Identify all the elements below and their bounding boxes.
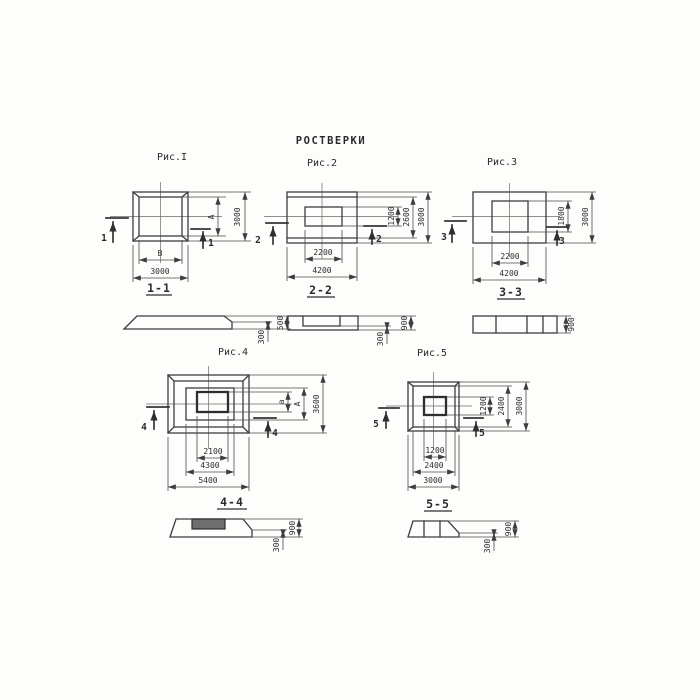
fig1-dim-right-inner: А: [207, 214, 216, 219]
fig3-dim-bottom-outer: 4200: [499, 269, 518, 278]
fig1-cut-digit-left: 1: [101, 233, 107, 244]
fig4: Рис.4 2100 4300 5400 а: [141, 347, 327, 509]
fig4-dim-bottom-outer: 5400: [198, 476, 217, 485]
fig3-section-view: 900: [473, 316, 576, 333]
section5-shape: [408, 521, 459, 537]
section5-dim-total: 900: [504, 522, 513, 537]
fig5-dim-lines: [408, 382, 530, 491]
fig5-dim-bottom-outer: 3000: [423, 476, 442, 485]
scanned-drawing-page: РОСТВЕРКИ Рис.I В 3000 А 3000: [0, 0, 700, 700]
section3-dim-total: 900: [567, 317, 576, 332]
fig4-dim-bottom-mid: 4300: [200, 461, 219, 470]
fig2: Рис.2 2200 4200 1200 2600 3000: [255, 158, 432, 297]
fig2-caption: Рис.2: [307, 158, 337, 169]
fig3: Рис.3 2200 4200 1800 3000 3 3 3-3: [441, 157, 596, 299]
fig2-section-title: 2-2: [309, 283, 333, 297]
section1-dim-total: 500: [276, 316, 285, 331]
fig4-cut-digit-left: 4: [141, 422, 147, 433]
fig3-cut-digit-right: 3: [559, 236, 565, 247]
fig3-caption: Рис.3: [487, 157, 517, 168]
fig4-dim-bottom-inner: 2100: [203, 447, 222, 456]
fig5-dim-bottom-mid: 2400: [424, 461, 443, 470]
section2-dim-total: 900: [400, 316, 409, 331]
fig5-dim-right-inner: 1200: [479, 396, 488, 415]
fig5-section-view: 900 300: [408, 521, 519, 553]
fig1-cut-digit-right: 1: [208, 238, 214, 249]
section4-notch: [192, 519, 225, 529]
fig4-dim-right-mid: А: [293, 401, 302, 406]
fig4-section-title: 4-4: [220, 495, 244, 509]
section2-dim-lower: 300: [376, 332, 385, 347]
technical-drawing: РОСТВЕРКИ Рис.I В 3000 А 3000: [0, 0, 700, 700]
fig5-cut-digit-left: 5: [373, 419, 379, 430]
page-title: РОСТВЕРКИ: [296, 135, 366, 147]
fig3-cut-marks: [445, 221, 567, 245]
fig3-dim-right-inner: 1800: [557, 206, 566, 225]
section1-shape: [124, 316, 232, 329]
fig1-caption: Рис.I: [157, 152, 187, 163]
fig2-dim-bottom-inner: 2200: [313, 248, 332, 257]
fig5-caption: Рис.5: [417, 348, 447, 359]
fig5-dim-right-mid: 2400: [497, 396, 506, 415]
fig2-cut-digit-right: 2: [376, 234, 382, 245]
fig2-dim-right-inner: 1200: [387, 206, 396, 225]
fig2-dim-bottom-outer: 4200: [312, 266, 331, 275]
section1-dim-lower: 300: [257, 330, 266, 345]
fig4-inner-opening: [197, 392, 228, 412]
fig3-dim-bottom-inner: 2200: [500, 252, 519, 261]
fig1-section-title: 1-1: [147, 281, 171, 295]
fig1: Рис.I В 3000 А 3000 1 1 1-1: [101, 152, 251, 295]
fig5-dim-right-outer: 3000: [515, 396, 524, 415]
fig3-centerlines: [452, 183, 560, 257]
fig5: Рис.5 1200 2400 3000 1200: [373, 348, 530, 511]
fig5-dim-bottom-inner: 1200: [425, 446, 444, 455]
fig1-dim-bottom-inner: В: [158, 249, 163, 258]
section3-dividers: [496, 316, 543, 333]
fig5-cut-digit-right: 5: [479, 428, 485, 439]
section4-dim-lower: 300: [272, 538, 281, 553]
fig3-cut-digit-left: 3: [441, 232, 447, 243]
fig2-dim-right-outer: 3000: [417, 207, 426, 226]
section2-notch: [303, 316, 340, 326]
fig1-centerlines: [110, 182, 222, 263]
fig5-section-title: 5-5: [426, 497, 450, 511]
fig1-section-view: 500 300: [124, 316, 291, 345]
fig1-dim-right-outer: 3000: [233, 207, 242, 226]
fig2-section-view: 900 300: [288, 316, 416, 347]
fig4-section-view: 900 300: [170, 519, 303, 552]
fig2-dim-right-mid: 2600: [402, 207, 411, 226]
section3-shape: [473, 316, 557, 333]
section5-dividers: [424, 521, 440, 537]
fig4-caption: Рис.4: [218, 347, 248, 358]
fig2-dim-lines: [287, 192, 432, 281]
fig1-cut-marks: [106, 218, 210, 248]
section5-dim-lower: 300: [483, 539, 492, 554]
fig2-cut-digit-left: 2: [255, 235, 261, 246]
fig3-dim-right-outer: 3000: [581, 207, 590, 226]
fig3-section-title: 3-3: [499, 285, 523, 299]
fig1-dim-bottom-outer: 3000: [150, 267, 169, 276]
fig4-dim-right-inner: а: [277, 399, 286, 404]
fig4-dim-right-outer: 3600: [312, 394, 321, 413]
fig5-cut-marks: [379, 408, 483, 436]
section2-shape: [288, 316, 358, 330]
fig4-cut-digit-right: 4: [272, 428, 278, 439]
section4-dim-total: 900: [288, 521, 297, 536]
